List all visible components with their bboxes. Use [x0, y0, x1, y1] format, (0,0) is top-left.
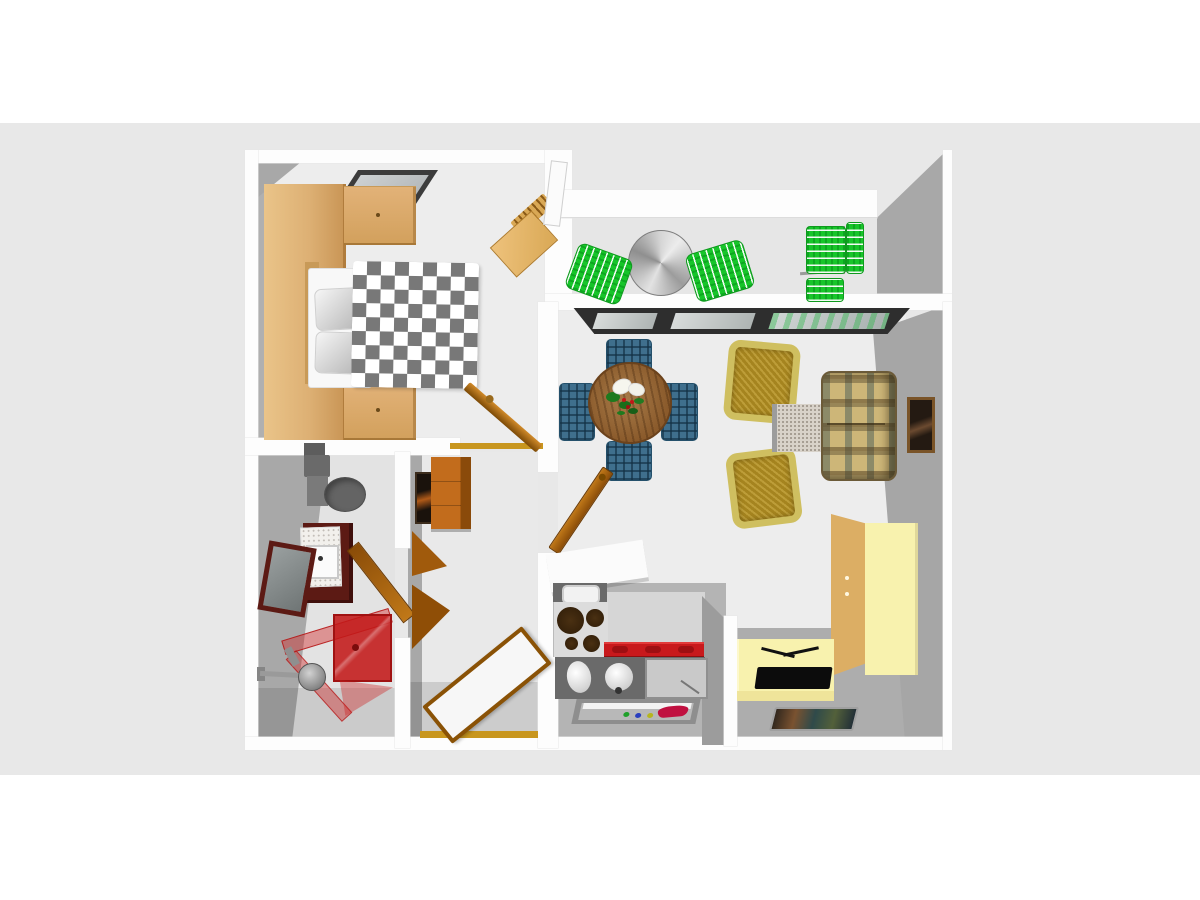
cooktop-burner	[586, 609, 604, 627]
cooktop-burner	[565, 637, 578, 650]
bed-checkered-duvet[interactable]	[351, 261, 479, 389]
kitchen-red-cabinets[interactable]	[604, 642, 704, 658]
white-jug[interactable]	[564, 659, 593, 695]
overbed-cabinet-top[interactable]	[344, 186, 416, 245]
hallway-tall-cabinet[interactable]	[431, 457, 471, 529]
armchair-bottom[interactable]	[725, 446, 804, 530]
appliance-front-panel[interactable]	[645, 658, 708, 699]
kitchen-floor-light-patch	[607, 592, 705, 644]
kitchen-partition-wall	[724, 616, 737, 746]
floor-plan-render	[0, 0, 1200, 900]
apartment-plan	[0, 0, 1200, 900]
cream-wardrobe-front[interactable]	[865, 523, 918, 675]
red-cabinet-handle	[612, 646, 628, 653]
doormat[interactable]	[769, 707, 859, 731]
sofa[interactable]	[821, 371, 897, 481]
balcony-round-table[interactable]	[628, 230, 694, 296]
television[interactable]	[754, 667, 832, 689]
cabinet-seam	[431, 481, 461, 482]
bath-hall-divider-upper	[395, 452, 410, 548]
window-pane	[592, 313, 657, 329]
balcony-right-wall-face	[877, 152, 945, 298]
panel-handle-line	[680, 680, 699, 694]
centerpiece-berries	[622, 398, 626, 402]
kettle-spout-dot	[615, 687, 622, 694]
balcony-right-outer-wall	[943, 150, 952, 302]
outer-bottom-wall	[245, 737, 952, 750]
toilet-bowl[interactable]	[324, 477, 366, 512]
cooktop-burner	[583, 635, 600, 652]
cabinet-seam	[431, 505, 461, 506]
cabinet-handle-dot	[376, 408, 380, 412]
sofa-cushion-seam	[827, 423, 885, 425]
lounger-panel-side[interactable]	[846, 222, 864, 274]
living-wall-picture[interactable]	[907, 397, 935, 453]
kitchen-cooktop[interactable]	[553, 602, 608, 657]
kitchen-lower-counter[interactable]	[555, 657, 705, 699]
red-cabinet-handle	[678, 646, 694, 653]
kitchen-sink-unit[interactable]	[553, 583, 607, 603]
window-pane	[670, 313, 755, 329]
kitchen-tray[interactable]	[571, 699, 700, 724]
vanity-faucet-dot	[318, 556, 323, 561]
shower-drain	[352, 644, 359, 651]
lounger-panel-main[interactable]	[806, 226, 846, 274]
outer-top-wall	[245, 150, 553, 163]
entrance-threshold	[420, 731, 538, 738]
living-window-band	[565, 308, 910, 334]
dining-chair-bottom[interactable]	[606, 441, 652, 481]
toilet-tank[interactable]	[304, 455, 330, 477]
shower-head[interactable]	[298, 663, 326, 691]
outer-right-wall	[943, 302, 952, 750]
red-cabinet-handle	[645, 646, 661, 653]
cabinet-handle-dot	[376, 213, 380, 217]
lounger-panel-foot[interactable]	[806, 278, 844, 302]
wardrobe-handle-dot	[845, 576, 849, 580]
balcony-top-wall	[558, 190, 877, 218]
wardrobe-handle-dot	[845, 592, 849, 596]
window-pane-with-reflection	[768, 313, 889, 329]
overbed-cabinet-bottom[interactable]	[344, 384, 416, 440]
dining-table[interactable]	[588, 362, 672, 444]
tv-cabinet[interactable]	[737, 639, 834, 701]
cream-wardrobe-side[interactable]	[831, 514, 867, 676]
cooktop-burner	[557, 607, 584, 634]
door-knob	[597, 472, 607, 482]
bath-hall-divider-lower	[395, 638, 410, 748]
shower-tray[interactable]	[333, 614, 392, 682]
bedroom-bottom-wall	[245, 438, 460, 455]
tv-antenna	[783, 646, 819, 656]
side-table[interactable]	[772, 404, 826, 452]
